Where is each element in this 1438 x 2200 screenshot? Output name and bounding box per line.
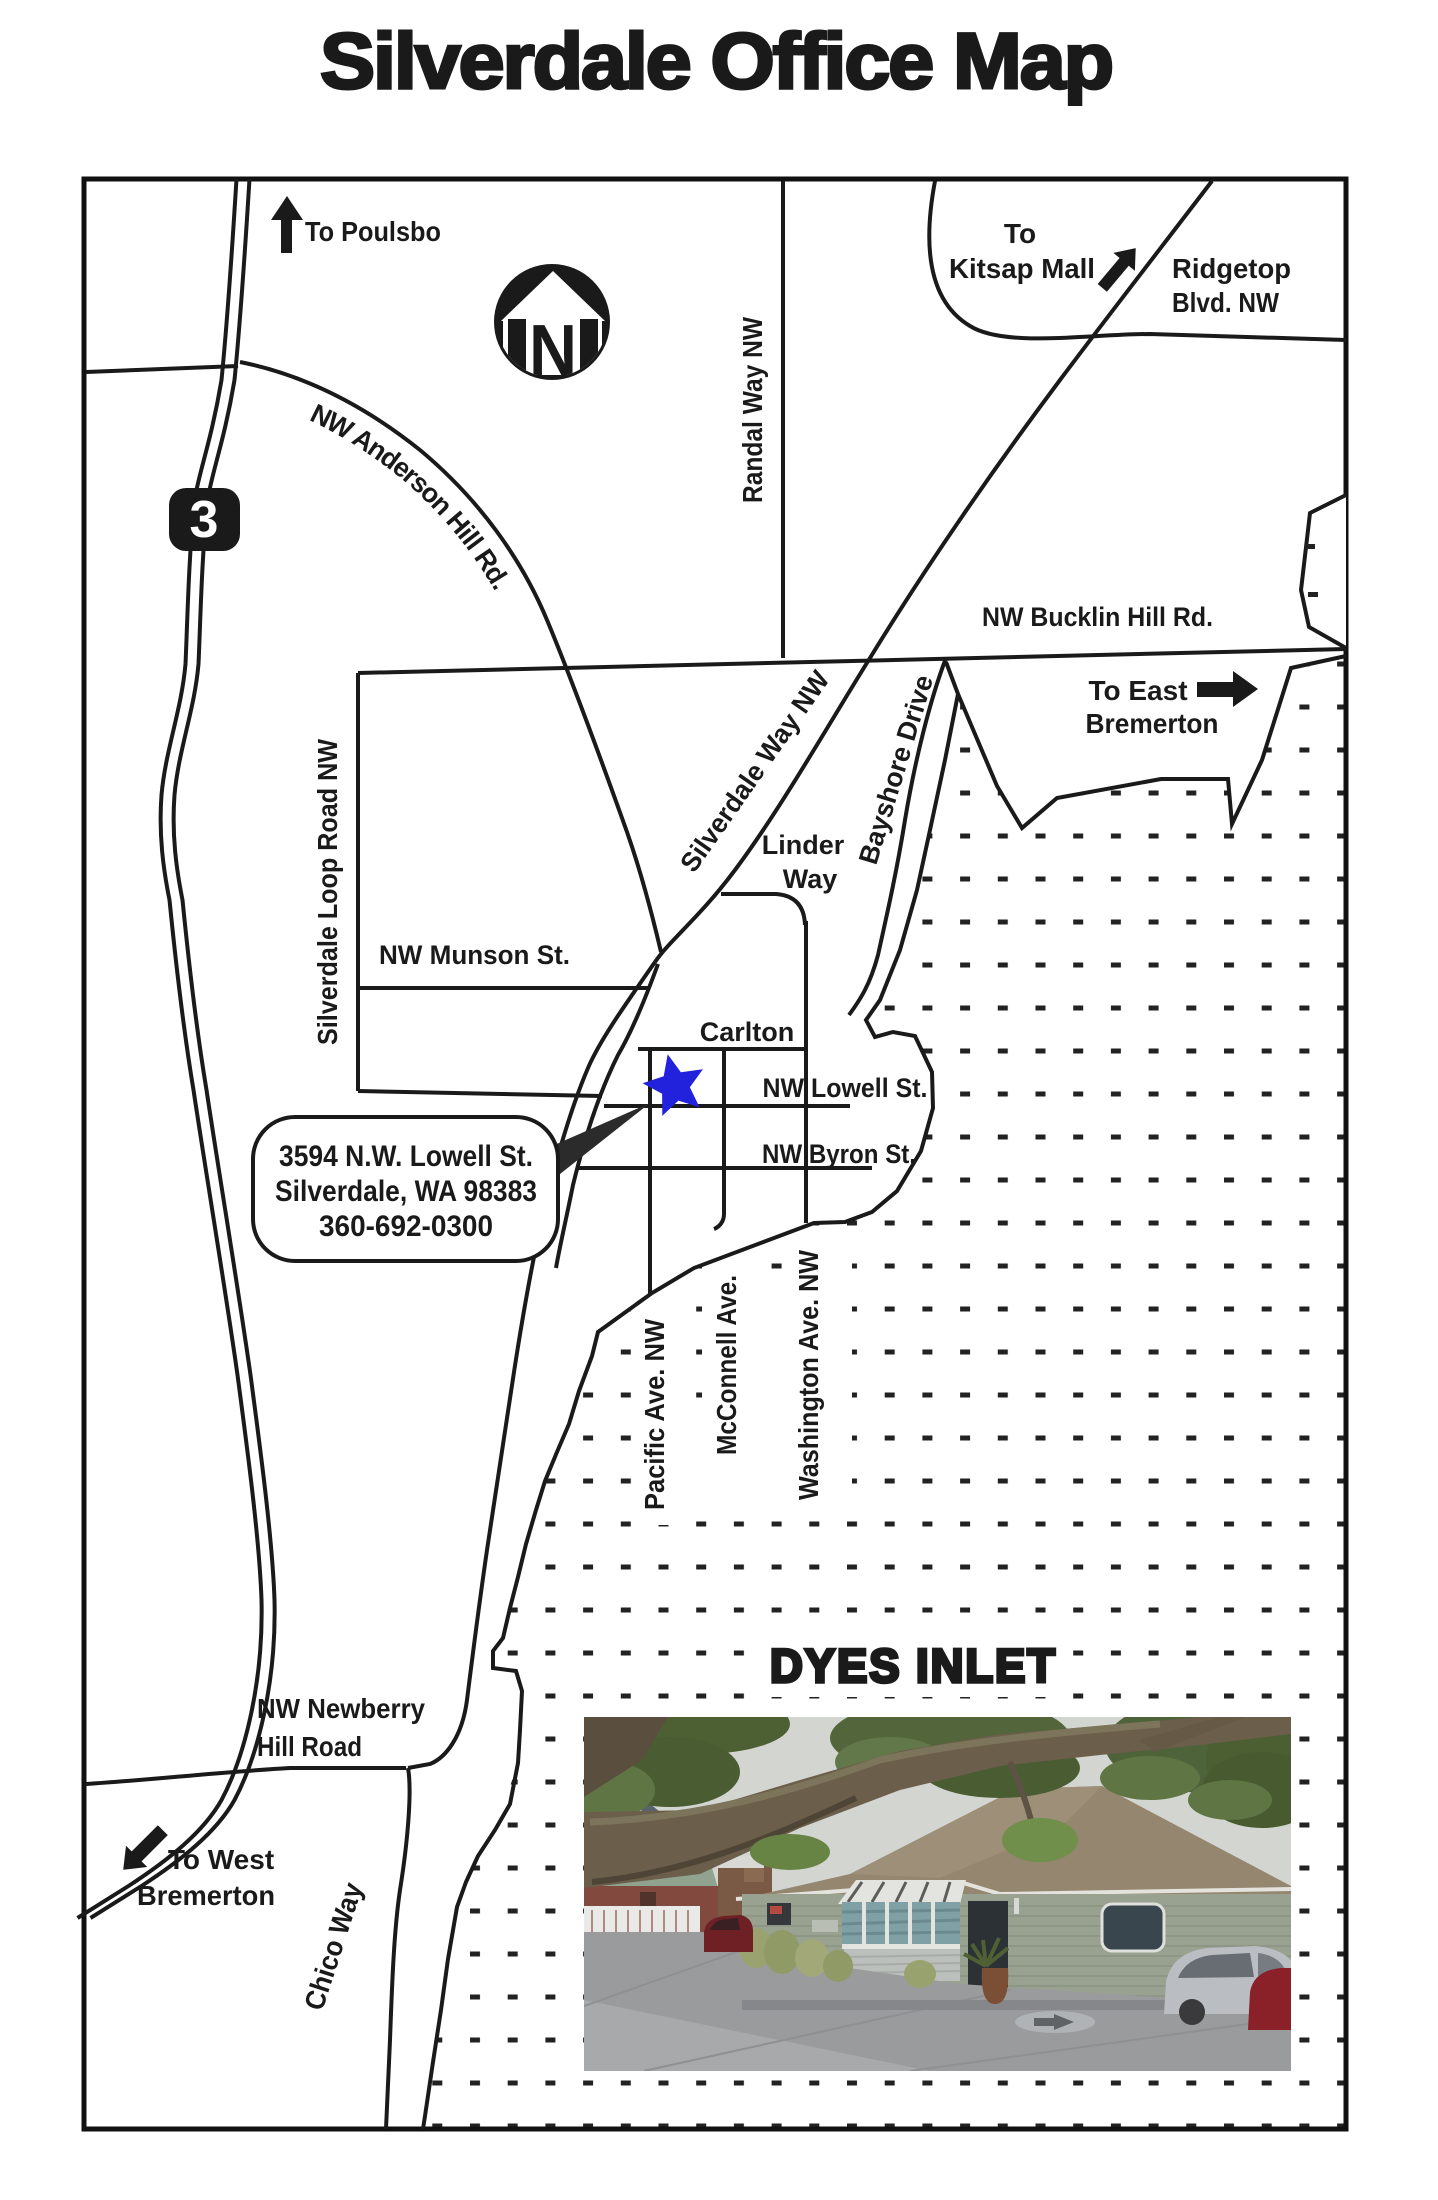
svg-text:Bremerton: Bremerton <box>1086 708 1219 739</box>
svg-text:Chico Way: Chico Way <box>298 1878 368 2013</box>
svg-text:Hill Road: Hill Road <box>257 1731 362 1762</box>
svg-text:DYES INLET: DYES INLET <box>770 1639 1057 1692</box>
svg-text:Washington Ave. NW: Washington Ave. NW <box>793 1249 824 1500</box>
svg-text:Randal Way NW: Randal Way NW <box>737 316 768 503</box>
svg-text:NW Munson St.: NW Munson St. <box>379 940 570 970</box>
svg-text:NW Lowell St.: NW Lowell St. <box>763 1073 928 1103</box>
svg-text:Silverdale Loop Road NW: Silverdale Loop Road NW <box>312 738 343 1045</box>
svg-text:Carlton: Carlton <box>700 1017 795 1047</box>
svg-text:Bremerton: Bremerton <box>137 1880 275 1911</box>
svg-text:To East: To East <box>1088 675 1187 706</box>
svg-text:NW Bucklin Hill Rd.: NW Bucklin Hill Rd. <box>982 602 1213 632</box>
svg-text:To Poulsbo: To Poulsbo <box>305 216 441 247</box>
svg-text:NW Byron St.: NW Byron St. <box>762 1139 916 1169</box>
svg-text:Kitsap Mall: Kitsap Mall <box>949 253 1095 284</box>
svg-text:3594 N.W. Lowell St.: 3594 N.W. Lowell St. <box>279 1140 533 1173</box>
svg-text:Silverdale, WA 98383: Silverdale, WA 98383 <box>275 1175 537 1208</box>
svg-text:NW Anderson Hill Rd.: NW Anderson Hill Rd. <box>306 398 516 594</box>
svg-text:360-692-0300: 360-692-0300 <box>319 1210 493 1243</box>
svg-text:Blvd. NW: Blvd. NW <box>1172 287 1279 318</box>
svg-text:Bayshore Drive: Bayshore Drive <box>853 672 939 868</box>
svg-text:Pacific Ave. NW: Pacific Ave. NW <box>639 1318 670 1510</box>
svg-text:NW Newberry: NW Newberry <box>257 1693 425 1724</box>
svg-text:Silverdale Office Map: Silverdale Office Map <box>320 16 1112 105</box>
svg-text:Way: Way <box>783 864 838 894</box>
svg-text:McConnell Ave.: McConnell Ave. <box>711 1275 742 1455</box>
svg-text:To: To <box>1004 218 1036 249</box>
svg-text:To West: To West <box>168 1844 274 1875</box>
svg-text:Ridgetop: Ridgetop <box>1172 253 1291 284</box>
svg-text:Linder: Linder <box>762 830 845 860</box>
svg-text:3: 3 <box>190 491 219 549</box>
